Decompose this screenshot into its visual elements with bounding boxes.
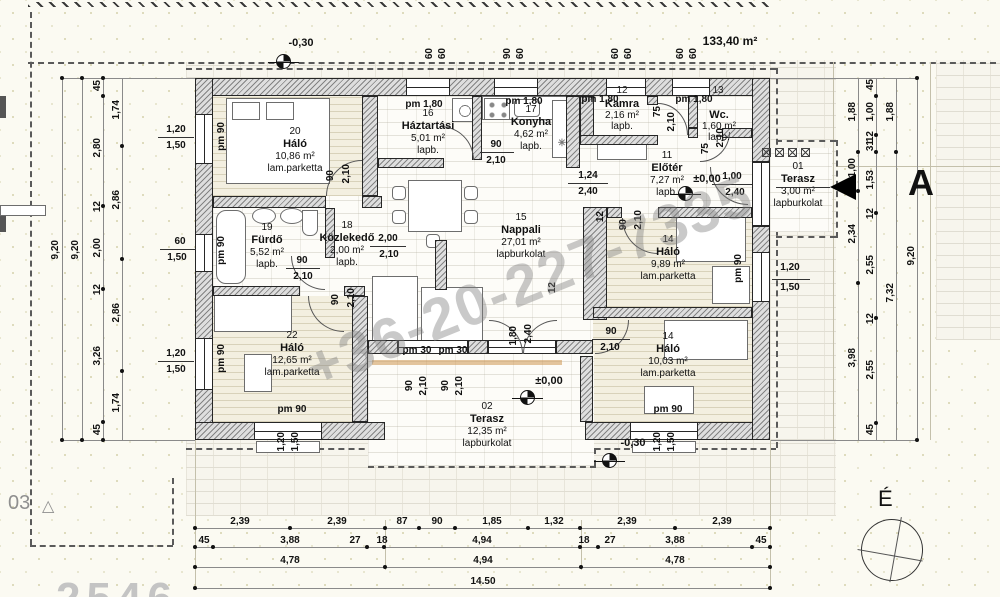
room-area: 10,86 m² [245,151,345,163]
door-size: 2,10 [341,164,352,183]
total-area-label: 133,40 m² [703,36,758,47]
window-size: 2,10 [418,376,429,395]
tick-mark [768,545,772,549]
fence-line-top [28,2,770,7]
room-number-wc: 13 [712,85,723,96]
room-number: 15 [471,212,571,224]
room-label-halo20: 20 Háló 10,86 m² lam.parketta [245,126,345,175]
dim-value: 45 [755,535,766,546]
dim-line [195,528,770,529]
wall-room14b-left [580,356,593,422]
boundary-line-bottom-left [30,545,173,547]
roof-line-right [776,68,778,448]
dim-value: 2,55 [865,255,876,274]
room-area: 10,03 m² [618,356,718,368]
tick-mark [120,144,124,148]
window-size: 90 [440,380,451,391]
door-size: 90 [605,326,616,337]
section-line [776,187,830,188]
parapet-label: pm 90 [216,236,227,265]
door-size: 2,10 [715,128,726,147]
dim-value: 9,20 [70,240,81,259]
door-size: 2,10 [600,342,619,353]
room-label-terasz02: 02 Terasz 12,35 m² lapburkolat [437,401,537,450]
parapet-label: pm 90 [216,344,227,373]
top-window-dim: 60 [688,48,699,59]
window-room20 [195,114,213,164]
dim-value: 2,39 [712,516,731,527]
bed-room22 [214,292,292,332]
opening-size: 2,10 [379,249,398,260]
dim-value: 1,32 [544,516,563,527]
corner-mark: 03 [8,492,30,515]
window-utility [406,78,450,96]
room-number: 18 [297,220,397,232]
tick-mark [193,545,197,549]
dim-line [770,440,917,441]
roof-line-top [186,68,776,70]
top-window-dim: 60 [424,48,435,59]
dim-value: 1,20 [652,432,663,451]
dim-line [770,78,917,79]
room-name: Háztartási [378,120,478,133]
window-room14a [752,252,770,302]
dim-value: 1,20 [276,432,287,451]
yard-line-2 [930,62,931,440]
level-marker-icon [602,453,617,468]
north-compass-icon [856,514,928,586]
yard-line-1 [833,62,834,440]
dim-value: 2,00 [92,238,103,257]
dim-value: 1,50 [290,432,301,451]
dim-value: 1,74 [111,100,122,119]
top-window-dim: 60 [437,48,448,59]
fraction-bar [480,152,514,153]
wall-room14-mid [593,307,752,318]
dim-value: 3,88 [280,535,299,546]
neighbor-fragment-1 [0,96,6,118]
level-marker-icon [276,54,291,69]
dim-value: 4,78 [280,555,299,566]
parapet-label: pm 90 [278,404,307,415]
dim-value: 45 [198,535,209,546]
boundary-line-top [28,62,996,64]
parapet-label: pm 1,80 [581,94,618,105]
dim-value: 1,50 [666,432,677,451]
tick-mark [193,526,197,530]
tick-mark [596,545,600,549]
terrace01-roof-bottom [776,236,836,238]
dim-line [82,78,83,440]
opening-size: 2,00 [378,233,397,244]
tick-mark [894,150,898,154]
dim-value: 87 [396,516,407,527]
dim-value: 1,50 [780,282,799,293]
dim-value: 1,20 [166,348,185,359]
window-size: 2,10 [454,376,465,395]
tick-mark [578,526,582,530]
tick-mark [915,438,919,442]
tick-mark [856,281,860,285]
neighbor-fragment-3 [0,205,46,216]
tick-mark [101,94,105,98]
dim-value: 3,98 [847,348,858,367]
dim-value: 45 [865,79,876,90]
fraction-bar [158,361,194,362]
wall-room20-bottom-a [213,196,326,208]
tick-mark [193,586,197,590]
dim-line [896,78,897,440]
dim-value: 4,78 [665,555,684,566]
tick-mark [856,150,860,154]
fraction-bar [286,268,320,269]
dim-line [195,588,770,589]
door-size: 75 [700,143,711,154]
dim-value: 2,80 [92,138,103,157]
window-bath [195,234,213,272]
level-value: -0,30 [620,438,645,449]
room-label-haztartasi: 16 Háztartási 5,01 m² lapb. [378,108,478,157]
tick-mark [101,76,105,80]
fraction-bar [160,249,196,250]
vent-square-icon [788,148,797,157]
dim-value: 60 [174,236,185,247]
level-marker-icon [520,390,535,405]
tick-mark [526,526,530,530]
terrace01-roof-top [776,140,836,142]
opening-size: 1,24 [578,170,597,181]
room-number: 20 [245,126,345,138]
tick-mark [383,526,387,530]
tick-mark [211,545,215,549]
tick-mark [193,565,197,569]
cropped-watermark-text: 2546 [56,574,178,597]
dim-value: 2,86 [111,303,122,322]
tick-mark [101,204,105,208]
tick-mark [60,438,64,442]
window-room22-bottom [254,422,322,440]
dim-value: 14.50 [470,576,495,587]
fraction-bar [592,339,630,340]
room-floor: lapb. [572,121,672,132]
door-size: 2,10 [293,271,312,282]
north-label: É [878,486,893,512]
top-window-dim: 90 [502,48,513,59]
boundary-line-left [30,12,32,545]
tick-mark [365,545,369,549]
room-number: 14 [618,331,718,343]
dim-value: 1,88 [885,102,896,121]
tick-mark [120,257,124,261]
door-size: 2,10 [346,288,357,307]
top-window-dim: 60 [610,48,621,59]
dim-value: 2,39 [327,516,346,527]
wall-pantry-bottom [580,135,658,145]
room-floor: lapb. [378,145,478,157]
tick-mark [80,76,84,80]
dining-chair-1 [392,186,406,200]
dim-value: 2,55 [865,360,876,379]
tick-mark [80,438,84,442]
floor-plan-canvas: ✳ [0,0,1000,597]
dim-value: 4,94 [472,535,491,546]
porch-roof-right [594,448,596,466]
room-area: 5,01 m² [378,133,478,145]
tick-mark [874,211,878,215]
dim-line [62,78,63,440]
tick-mark [768,526,772,530]
door-size: 90 [296,255,307,266]
level-value: ±0,00 [535,376,562,387]
level-value: -0,30 [288,38,313,49]
dim-line [195,567,770,568]
section-arrow-icon [830,174,856,200]
parapet-label: pm 1,80 [505,96,542,107]
porch-pier-right [556,340,593,354]
window-size: 90 [404,380,415,391]
room-name: Háló [245,138,345,151]
room-area: 12,35 m² [437,426,537,438]
dim-value: 9,20 [906,246,917,265]
door-size: 75 [652,106,663,117]
door-size: 2,10 [486,155,505,166]
tick-mark [874,150,878,154]
dim-value: 2,39 [617,516,636,527]
wall-utility-bottom [378,158,444,168]
dim-value: 1,50 [166,364,185,375]
room-floor: lam.parketta [618,368,718,380]
dim-value: 1,85 [482,516,501,527]
tick-mark [856,189,860,193]
dim-line [103,78,104,440]
parapet-label: pm 90 [216,122,227,151]
tick-mark [673,526,677,530]
window-kitchen [494,78,538,96]
tick-mark [383,565,387,569]
parapet-label: pm 90 [654,404,683,415]
tick-mark [915,76,919,80]
parapet-label: pm 1,80 [405,99,442,110]
vent-square-icon [762,148,771,157]
door-size: 2,10 [666,112,677,131]
dim-value: 4,94 [473,555,492,566]
tick-mark [120,369,124,373]
dim-line [858,78,859,440]
tick-mark [768,586,772,590]
tick-mark [750,545,754,549]
tick-mark [101,438,105,442]
porch-pier-mid [468,340,488,354]
dim-value: 1,53 [865,170,876,189]
dim-value: 1,50 [166,140,185,151]
door-size: 90 [490,139,501,150]
pillow-room20-b [266,102,294,120]
door-size: 2,40 [523,324,534,343]
tick-mark [578,545,582,549]
dim-value: 27 [349,535,360,546]
tick-mark [382,545,386,549]
fraction-bar [158,137,194,138]
porch-roof-bottom [368,466,596,468]
boundary-step-left [172,478,174,545]
parapet-label: pm 90 [733,254,744,283]
dim-value: 1,20 [780,262,799,273]
door-size: 1,80 [508,326,519,345]
window-room22-left [195,338,213,390]
dim-value: 1,20 [166,124,185,135]
door-size: 90 [330,294,341,305]
tick-mark [768,565,772,569]
room-floor: lapburkolat [437,438,537,450]
room-name: Háló [618,343,718,356]
dim-line [917,78,918,440]
dim-value: 7,32 [885,283,896,302]
fraction-bar [370,246,406,247]
dim-value: 45 [865,424,876,435]
paving-far-right [936,60,1000,340]
dining-table [408,180,462,232]
top-window-dim: 60 [515,48,526,59]
dim-value: 90 [431,516,442,527]
dim-value: 1,50 [167,252,186,263]
tick-mark [874,421,878,425]
fraction-bar [568,183,608,184]
room-name: Terasz [437,413,537,426]
dim-value: 1,88 [847,102,858,121]
dining-chair-3 [464,186,478,200]
dim-value: 9,20 [50,240,61,259]
fraction-bar [772,279,810,280]
dim-value: 3,88 [665,535,684,546]
tick-mark [288,526,292,530]
room-name: Konyha [481,116,581,129]
tick-mark [874,316,878,320]
dim-value: 45 [92,80,103,91]
tick-mark [453,526,457,530]
dim-value: 2,34 [847,224,858,243]
exterior-step-left [256,441,320,453]
section-letter: A [908,162,934,204]
pillow-room20-a [232,102,260,120]
tick-mark [101,287,105,291]
dim-value: 1,74 [111,393,122,412]
tick-mark [101,420,105,424]
room-label-kozlekedo: 18 Közlekedő 2,00 m² lapb. [297,220,397,269]
dim-value: 2,39 [230,516,249,527]
vent-square-icon [801,148,810,157]
paving-right [770,60,836,440]
parapet-label: pm 1,80 [675,94,712,105]
room-name: Wc. [669,110,769,121]
wall-room20-right [362,96,378,196]
tick-mark [874,133,878,137]
dim-value: 3,26 [92,346,103,365]
dim-value: 2,86 [111,190,122,209]
vent-square-icon [775,148,784,157]
room-number: 01 [752,161,844,173]
wall-bath-bottom-a [213,286,300,296]
room-label-halo14b: 14 Háló 10,03 m² lam.parketta [618,331,718,380]
dim-value: 27 [604,535,615,546]
triangle-icon: △ [42,496,54,516]
tick-mark [417,526,421,530]
tick-mark [579,565,583,569]
door-size: 90 [325,170,336,181]
tick-mark [874,94,878,98]
wall-room20-bottom-b [362,196,382,208]
top-window-dim: 60 [675,48,686,59]
dim-value: 1,00 [865,102,876,121]
tick-mark [60,76,64,80]
paving-top-band [186,62,770,78]
dim-line [195,547,770,548]
dim-value: 45 [92,424,103,435]
top-window-dim: 60 [623,48,634,59]
opening-size: 2,40 [578,186,597,197]
